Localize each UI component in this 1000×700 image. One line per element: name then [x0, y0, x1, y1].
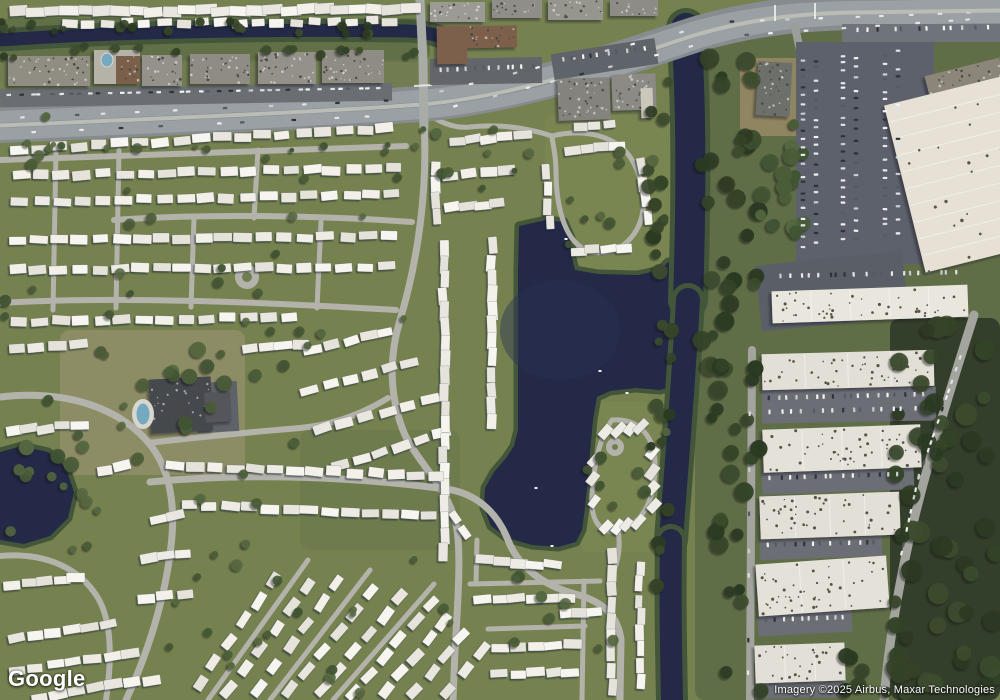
house-roof	[336, 125, 354, 135]
car	[359, 87, 364, 89]
apartment-1-speckle	[9, 77, 10, 78]
apartment-1-speckle	[20, 66, 22, 68]
car	[330, 88, 335, 90]
house-roof	[321, 507, 339, 517]
tree-canopy	[273, 575, 283, 585]
car	[814, 119, 819, 121]
car	[730, 20, 735, 22]
car	[6, 94, 11, 96]
car	[217, 90, 222, 92]
commercial-top-3-speckle	[583, 5, 585, 7]
car	[896, 173, 901, 175]
commercial-top-3-speckle	[596, 0, 598, 2]
apartment-5-speckle	[304, 77, 306, 79]
apartment-1-group	[8, 56, 90, 86]
apartment-3-speckle	[147, 67, 149, 69]
car	[903, 271, 905, 276]
commercial-top-2	[492, 0, 542, 18]
car	[987, 25, 990, 30]
tree-canopy	[295, 29, 303, 37]
tree-canopy	[316, 329, 325, 338]
house-roof	[637, 641, 644, 657]
car	[50, 93, 55, 95]
tree-canopy	[731, 528, 743, 540]
house-roof	[48, 341, 67, 351]
tree-canopy	[633, 467, 644, 478]
car	[854, 162, 859, 164]
apartment-6-speckle	[363, 58, 366, 61]
house-roof	[192, 133, 211, 143]
tree-canopy	[651, 249, 661, 259]
apartment-4-speckle	[224, 63, 225, 64]
house-roof	[303, 164, 322, 175]
commercial-top-3-speckle	[579, 2, 581, 4]
car	[841, 167, 846, 169]
house-roof	[10, 317, 27, 327]
house-roof	[267, 465, 284, 474]
car	[883, 91, 888, 93]
car	[801, 118, 806, 120]
car	[108, 92, 113, 94]
house-roof	[440, 270, 449, 288]
commercial-top-2-speckle	[514, 10, 517, 13]
car	[896, 109, 901, 111]
commercial-top-4-speckle	[621, 11, 623, 13]
commercial-top-4-speckle	[616, 2, 618, 4]
tree-canopy	[567, 196, 574, 203]
commercial-top-1-speckle	[449, 5, 450, 6]
house-roof	[260, 504, 279, 514]
tree-canopy	[536, 591, 547, 602]
car	[801, 138, 806, 140]
car	[807, 616, 809, 621]
apartment-4-speckle	[191, 64, 193, 66]
car	[240, 121, 245, 123]
tree-canopy	[887, 617, 903, 633]
car	[859, 540, 861, 545]
tree-canopy	[596, 481, 605, 490]
cul-de-sac-island	[612, 444, 618, 450]
commercial-top-3-speckle	[571, 7, 572, 8]
tree-canopy	[164, 27, 173, 36]
house-roof	[175, 549, 191, 558]
car	[841, 97, 846, 99]
car	[801, 199, 806, 201]
tree-canopy	[363, 22, 372, 31]
car	[857, 393, 859, 398]
tree-canopy	[254, 288, 263, 297]
tree-canopy	[13, 464, 24, 475]
car	[842, 408, 844, 413]
apartment-4-speckle	[229, 59, 231, 61]
apartment-3-speckle	[172, 71, 174, 73]
house-roof	[177, 19, 192, 28]
apartment-1-speckle	[34, 66, 36, 68]
commercial-top-2-speckle	[500, 2, 503, 5]
house-roof	[155, 316, 174, 326]
commercial-top-1-speckle	[464, 5, 466, 7]
crosswalk	[414, 85, 432, 86]
commercial-top-4-speckle	[627, 6, 629, 8]
commercial-top-2-speckle	[512, 14, 513, 15]
apartment-1-speckle	[70, 57, 73, 60]
car	[841, 179, 846, 181]
car	[814, 107, 819, 109]
house-roof	[431, 192, 441, 209]
car	[949, 19, 954, 21]
house-roof	[136, 194, 152, 203]
tree-canopy	[735, 595, 749, 609]
tree-canopy	[707, 412, 718, 423]
car	[844, 394, 846, 399]
apartment-4-speckle	[235, 57, 237, 59]
tree-canopy	[560, 598, 572, 610]
tree-canopy	[890, 353, 908, 371]
apartment-4-speckle	[210, 67, 212, 69]
apartment-5-speckle	[266, 59, 268, 61]
brown-roof-bldg-b-group	[437, 26, 468, 65]
car	[814, 213, 819, 215]
car	[842, 473, 844, 478]
satellite-map[interactable]	[0, 0, 1000, 700]
car	[896, 145, 901, 147]
house-roof	[388, 469, 405, 480]
tree-canopy	[775, 166, 792, 183]
tree-canopy	[211, 551, 218, 558]
tree-canopy	[783, 148, 800, 165]
house-roof	[220, 166, 238, 176]
house-roof	[362, 189, 380, 198]
house-roof	[511, 670, 526, 679]
house-roof	[487, 315, 497, 334]
commercial-top-2-speckle	[496, 5, 498, 7]
tree-canopy	[146, 213, 157, 224]
car	[229, 90, 234, 92]
car	[883, 127, 888, 130]
car	[966, 12, 971, 14]
car	[801, 235, 806, 238]
tree-canopy	[733, 145, 744, 156]
apartment-1-speckle	[13, 77, 14, 78]
house-roof	[486, 396, 496, 415]
car	[928, 270, 930, 275]
car	[814, 223, 819, 225]
tree-canopy	[595, 644, 603, 652]
car	[169, 91, 174, 93]
car	[896, 156, 901, 159]
commercial-top-3-speckle	[550, 3, 552, 5]
house-roof	[635, 624, 644, 641]
tree-canopy	[74, 430, 83, 439]
car	[744, 34, 749, 36]
apartment-5-group	[258, 52, 316, 84]
tree-canopy	[128, 290, 134, 296]
house-roof	[400, 3, 421, 14]
house-roof	[29, 235, 48, 244]
commercial-top-3-speckle	[598, 7, 599, 8]
tree-canopy	[226, 17, 234, 25]
house-roof	[211, 6, 232, 17]
apartment-5-speckle	[287, 67, 288, 68]
car	[896, 75, 901, 77]
tree-canopy	[722, 465, 740, 483]
house-roof	[36, 575, 53, 586]
tree-canopy	[71, 45, 80, 54]
apartment-4-speckle	[247, 65, 249, 67]
commercial-top-1-speckle	[453, 3, 456, 6]
car	[922, 392, 925, 397]
apartment-1-speckle	[76, 67, 79, 70]
car	[801, 246, 806, 248]
house-roof	[314, 126, 332, 137]
tree-canopy	[714, 76, 731, 93]
car	[346, 87, 351, 89]
apartment-1-speckle	[48, 81, 51, 84]
house-roof	[440, 528, 450, 545]
swimming-pool	[101, 53, 113, 67]
tree-canopy	[81, 42, 89, 50]
commercial-south-1-group	[557, 77, 610, 121]
tree-canopy	[1, 312, 9, 320]
commercial-top-4-speckle	[626, 10, 628, 12]
car	[376, 87, 381, 90]
tree-canopy	[448, 619, 454, 625]
tree-canopy	[741, 413, 754, 426]
apartment-6-speckle	[371, 72, 372, 73]
tree-canopy	[754, 683, 769, 698]
car	[883, 218, 888, 220]
apartment-1-speckle	[35, 61, 37, 63]
house-roof	[506, 593, 525, 603]
warehouse-access-road	[750, 350, 752, 700]
house-roof	[644, 210, 653, 225]
tree-canopy	[651, 221, 663, 233]
house-roof	[308, 17, 321, 25]
house-roof	[297, 234, 314, 243]
tree-canopy	[203, 145, 211, 153]
car	[607, 51, 610, 56]
apartment-6-speckle	[326, 69, 328, 71]
tree-canopy	[132, 143, 142, 153]
tree-canopy	[929, 617, 946, 634]
apartment-6-speckle	[344, 69, 346, 71]
tree-canopy	[94, 507, 101, 514]
car	[841, 150, 846, 152]
google-logo[interactable]: Google	[8, 666, 86, 692]
tree-canopy	[959, 606, 974, 621]
car	[365, 115, 370, 117]
car	[858, 473, 860, 478]
warehouse-5	[754, 642, 845, 683]
apartment-5-speckle	[270, 81, 272, 83]
car	[801, 146, 806, 148]
house-roof	[560, 668, 579, 678]
tree-canopy	[196, 17, 205, 26]
house-roof	[258, 342, 275, 352]
apartment-4-speckle	[206, 70, 208, 72]
house-roof	[35, 196, 50, 205]
house-roof	[636, 561, 645, 576]
car	[789, 273, 791, 278]
apartment-5-speckle	[308, 76, 310, 78]
commercial-top-1-speckle	[475, 17, 478, 20]
house-roof	[93, 234, 109, 243]
tree-canopy	[650, 579, 664, 593]
house-roof	[263, 165, 279, 174]
house-roof	[315, 263, 331, 271]
car	[883, 234, 888, 236]
car	[768, 410, 770, 415]
tree-canopy	[213, 277, 223, 287]
tree-canopy	[355, 688, 365, 698]
house-roof	[281, 312, 297, 322]
car	[800, 409, 802, 414]
house-roof	[357, 263, 373, 272]
house-roof	[177, 589, 194, 600]
house-roof	[606, 663, 615, 679]
tree-canopy	[716, 359, 729, 372]
house-roof	[95, 196, 110, 206]
apartment-1-speckle	[84, 78, 87, 81]
commercial-top-1-speckle	[446, 15, 447, 16]
house-roof	[44, 628, 61, 639]
house-roof	[53, 198, 71, 207]
house-roof	[588, 121, 601, 130]
tree-canopy	[750, 440, 767, 457]
tree-canopy	[728, 189, 746, 207]
car	[893, 407, 895, 412]
tree-canopy	[204, 628, 213, 637]
house-roof	[541, 164, 550, 180]
tree-canopy	[614, 146, 625, 157]
apartment-1-speckle	[39, 70, 41, 72]
car	[925, 26, 927, 31]
apartment-6-speckle	[336, 71, 338, 73]
tree-canopy	[762, 154, 779, 171]
tree-canopy	[411, 556, 418, 563]
car	[896, 205, 901, 207]
car	[814, 126, 819, 128]
commercial-top-3-speckle	[556, 14, 558, 16]
tree-canopy	[45, 144, 53, 152]
tree-canopy	[913, 375, 930, 392]
car	[815, 474, 817, 479]
house-roof	[321, 190, 338, 201]
car	[841, 238, 846, 240]
house-roof	[616, 243, 633, 253]
commercial-top-1-speckle	[468, 17, 470, 19]
house-roof	[52, 315, 71, 326]
apartment-3-speckle	[154, 70, 157, 73]
house-roof	[544, 641, 563, 651]
tree-canopy	[510, 637, 520, 647]
house-roof	[335, 263, 353, 273]
commercial-top-1-speckle	[441, 6, 443, 8]
apartment-1-speckle	[82, 71, 84, 73]
tree-canopy	[288, 212, 298, 222]
house-roof	[54, 421, 70, 429]
tree-canopy	[661, 503, 675, 517]
tree-canopy	[182, 369, 198, 385]
tree-canopy	[609, 501, 618, 510]
car	[497, 65, 499, 70]
house-roof	[345, 19, 358, 27]
apartment-5-speckle	[309, 80, 311, 82]
car	[801, 69, 806, 71]
car	[79, 129, 84, 131]
apartment-4-speckle	[192, 59, 194, 61]
house-roof	[155, 590, 173, 601]
car	[814, 201, 819, 203]
car	[831, 408, 833, 413]
house-roof	[262, 4, 284, 15]
commercial-top-3-speckle	[552, 9, 555, 12]
apartment-6-speckle	[330, 68, 332, 70]
tree-canopy	[47, 472, 56, 481]
car	[148, 91, 153, 93]
car	[909, 14, 914, 17]
apartment-5-speckle	[259, 70, 262, 73]
house-roof	[239, 166, 256, 177]
car	[854, 230, 859, 232]
house-roof	[198, 167, 216, 176]
car	[747, 670, 749, 675]
car	[840, 541, 842, 546]
car	[896, 232, 901, 234]
house-roof	[490, 669, 508, 678]
house-roof	[636, 673, 645, 689]
house-roof	[491, 644, 509, 653]
tree-canopy	[708, 523, 725, 540]
map-viewport[interactable]: Google Imagery ©2025 Airbus, Maxar Techn…	[0, 0, 1000, 700]
brown-roof-bldg-b	[437, 26, 468, 65]
tree-canopy	[33, 150, 44, 161]
tree-canopy	[205, 401, 217, 413]
apartment-3-speckle	[167, 74, 168, 75]
apartment-6-speckle	[331, 76, 334, 79]
house-roof	[131, 262, 150, 272]
car	[832, 394, 835, 399]
apartment-1-speckle	[74, 83, 76, 85]
house-roof	[607, 565, 617, 583]
house-roof	[213, 233, 232, 242]
car	[826, 615, 829, 620]
house-roof	[151, 137, 170, 148]
apartment-5-speckle	[292, 75, 293, 76]
apartment-3-speckle	[173, 81, 175, 83]
house-roof	[113, 234, 132, 245]
car	[883, 194, 888, 196]
commercial-top-1-speckle	[430, 12, 432, 14]
car	[854, 219, 859, 221]
house-roof	[70, 234, 88, 244]
apartment-6-speckle	[365, 73, 366, 74]
tree-canopy	[604, 217, 615, 228]
house-roof	[28, 265, 47, 276]
apartment-1-speckle	[29, 72, 31, 74]
house-roof	[430, 176, 440, 194]
house-roof	[487, 285, 498, 304]
apartment-6-speckle	[340, 70, 342, 72]
car	[267, 89, 272, 91]
apartment-6-speckle	[382, 64, 383, 65]
car	[801, 176, 806, 178]
car	[765, 618, 767, 623]
house-roof	[52, 170, 70, 181]
apartment-6-speckle	[359, 66, 361, 68]
car	[854, 186, 859, 188]
house-roof	[375, 122, 394, 134]
